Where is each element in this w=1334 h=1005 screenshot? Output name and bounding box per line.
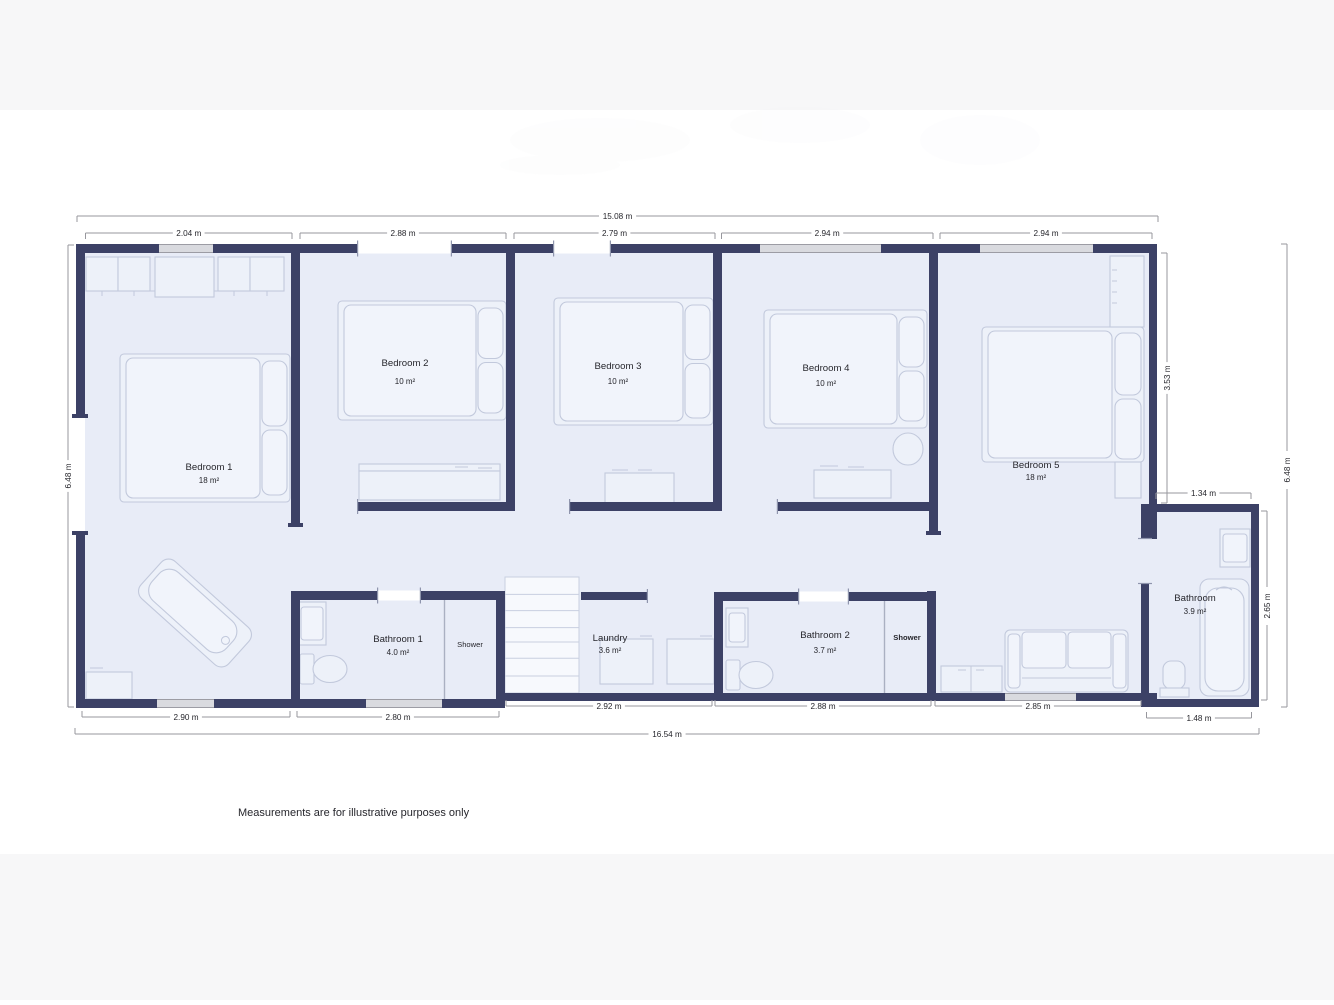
svg-text:Shower: Shower [457,640,483,649]
svg-text:15.08 m: 15.08 m [603,212,633,221]
svg-text:1.34 m: 1.34 m [1191,489,1216,498]
svg-text:3.53 m: 3.53 m [1163,365,1172,390]
svg-text:Bathroom: Bathroom [1174,593,1216,604]
svg-text:2.65 m: 2.65 m [1263,593,1272,618]
svg-text:6.48 m: 6.48 m [1283,457,1292,482]
svg-text:Bathroom 1: Bathroom 1 [373,634,423,645]
svg-text:2.80 m: 2.80 m [385,713,410,722]
svg-text:3.7 m²: 3.7 m² [814,646,837,655]
svg-text:18 m²: 18 m² [1026,473,1047,482]
svg-text:2.79 m: 2.79 m [602,229,627,238]
svg-text:Bedroom 5: Bedroom 5 [1013,460,1060,471]
svg-text:18 m²: 18 m² [199,476,220,485]
svg-text:2.90 m: 2.90 m [173,713,198,722]
svg-text:Bathroom 2: Bathroom 2 [800,630,850,641]
svg-text:Measurements are for illustrat: Measurements are for illustrative purpos… [238,807,470,819]
svg-text:Bedroom 2: Bedroom 2 [382,358,429,369]
svg-text:2.88 m: 2.88 m [810,702,835,711]
svg-text:2.04 m: 2.04 m [176,229,201,238]
svg-text:16.54 m: 16.54 m [652,730,682,739]
svg-text:2.94 m: 2.94 m [815,229,840,238]
svg-text:10 m²: 10 m² [608,377,629,386]
svg-text:1.48 m: 1.48 m [1186,714,1211,723]
svg-text:2.88 m: 2.88 m [390,229,415,238]
svg-text:10 m²: 10 m² [395,377,416,386]
svg-text:Laundry: Laundry [593,633,628,644]
svg-text:10 m²: 10 m² [816,379,837,388]
svg-text:3.6 m²: 3.6 m² [599,646,622,655]
svg-text:Shower: Shower [893,633,920,642]
svg-text:6.48 m: 6.48 m [64,463,73,488]
svg-text:3.9 m²: 3.9 m² [1184,607,1207,616]
svg-text:Bedroom 3: Bedroom 3 [595,361,642,372]
svg-text:2.94 m: 2.94 m [1033,229,1058,238]
svg-text:4.0 m²: 4.0 m² [387,648,410,657]
svg-text:2.92 m: 2.92 m [596,702,621,711]
svg-text:Bedroom 1: Bedroom 1 [186,462,233,473]
svg-text:2.85 m: 2.85 m [1025,702,1050,711]
svg-text:Bedroom 4: Bedroom 4 [803,363,851,374]
